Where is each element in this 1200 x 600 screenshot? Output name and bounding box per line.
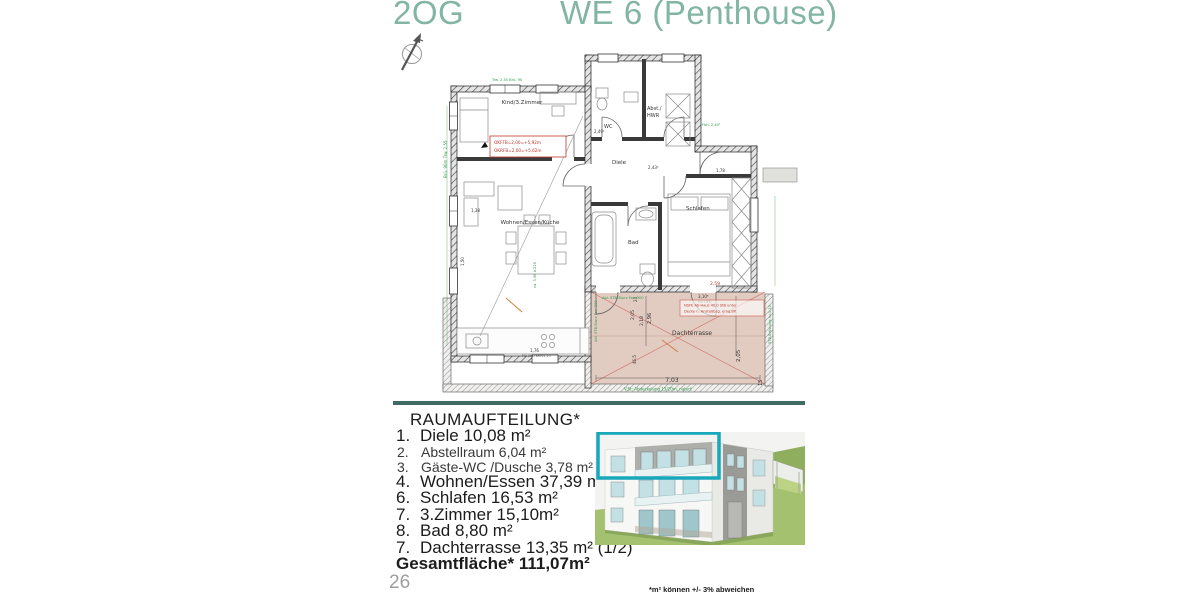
room-label-terrasse: Dachterrasse: [672, 330, 712, 337]
green-note-2: Abl. STB-Sturz Fav. 300: [602, 296, 644, 300]
dim-15: 15: [758, 380, 764, 386]
terrace-note-line2: Decke n. Anstoßbzg. erng.BP.: [684, 310, 737, 314]
green-note-1: Brü. 90m Trw. 2,55: [443, 140, 448, 178]
interior-walls: [457, 59, 751, 290]
dim-150: 1,50: [460, 257, 465, 266]
room-list-item: 2.Abstellraum 6,04 m²: [397, 444, 546, 460]
green-note-7: ca. 3,96 b.225: [533, 262, 537, 288]
door-gaps: [584, 164, 716, 293]
item-text: Abstellraum 6,04 m²: [421, 444, 546, 460]
dim-259: 2,59: [710, 281, 720, 287]
dim-296: 2,96: [647, 313, 653, 324]
terrace-note-line1: NSFE Ab-Haus 40,0 StB unter: [684, 304, 737, 308]
dim-205b: 2,05: [630, 310, 636, 320]
floor-plan-drawing: Kind/3.Zimmer WC Abst./ HWR Diele Wohnen…: [440, 46, 812, 402]
dim-brh: Mü UKD BRH/1,25: [522, 354, 551, 358]
dim-249: 2,49²: [594, 129, 605, 134]
dim-465: 46,5: [632, 355, 637, 364]
dim-205a: 2,05: [736, 349, 742, 362]
dim-178: 1,78: [716, 168, 725, 173]
unit-title: WE 6 (Penthouse): [560, 0, 838, 32]
north-arrow-icon: [392, 28, 432, 74]
item-text: Diele 10,08 m²: [420, 426, 531, 445]
dim-310: 3,10⁵: [698, 294, 709, 299]
green-note-5: STB-Brüstung h=1,10: [768, 304, 772, 344]
terrace-note-box: NSFE Ab-Haus 40,0 StB unter Decke n. Ans…: [680, 300, 764, 316]
level-note-line1: OKFFB=2,00=+5,92m: [494, 140, 541, 145]
item-number: 1.: [396, 426, 420, 446]
dim-218: 2,18: [639, 316, 645, 326]
level-note-box: OKFFB=2,00=+5,92m OKRFB=2,00=+5,62m: [481, 136, 566, 157]
room-label-schlafen: Schlafen: [686, 206, 710, 212]
room-label-wohnen: Wohnen/Essen/Küche: [501, 220, 560, 226]
page-number: 26: [389, 572, 410, 594]
footnote-text: *m² können +/- 3% abweichen: [649, 585, 754, 594]
total-area-line: Gesamtfläche* 111,07m²: [396, 554, 590, 574]
green-note-4: V.St: Abdeckelung 15/20m, naturf.: [624, 387, 692, 392]
dim-703: 7,03: [665, 377, 679, 384]
room-label-abst1: Abst./: [647, 106, 662, 112]
green-note-8: Trw. 2,55 Brü. 90: [491, 78, 523, 82]
dim-138: 1,38: [471, 208, 480, 213]
building-render: [595, 432, 805, 545]
green-note-6: Fbh. 2,40²: [702, 123, 721, 127]
item-number: 2.: [397, 444, 421, 460]
room-label-bad: Bad: [628, 240, 639, 246]
room-label-diele: Diele: [612, 160, 627, 166]
room-list-item: 1.Diele 10,08 m²: [396, 426, 531, 446]
green-note-3: Abl. STB-Sturz Fav. 300: [594, 300, 598, 342]
expose-page: 2OG WE 6 (Penthouse): [0, 0, 1200, 600]
divider-bar: [393, 401, 805, 405]
dim-243: 2,43²: [648, 165, 659, 170]
level-note-line2: OKRFB=2,00=+5,62m: [494, 148, 542, 153]
room-label-abst2: HWR: [647, 113, 660, 119]
room-label-kind: Kind/3.Zimmer: [502, 100, 544, 106]
dim-176: 1,76: [530, 348, 539, 353]
room-label-wc: WC: [604, 124, 613, 130]
